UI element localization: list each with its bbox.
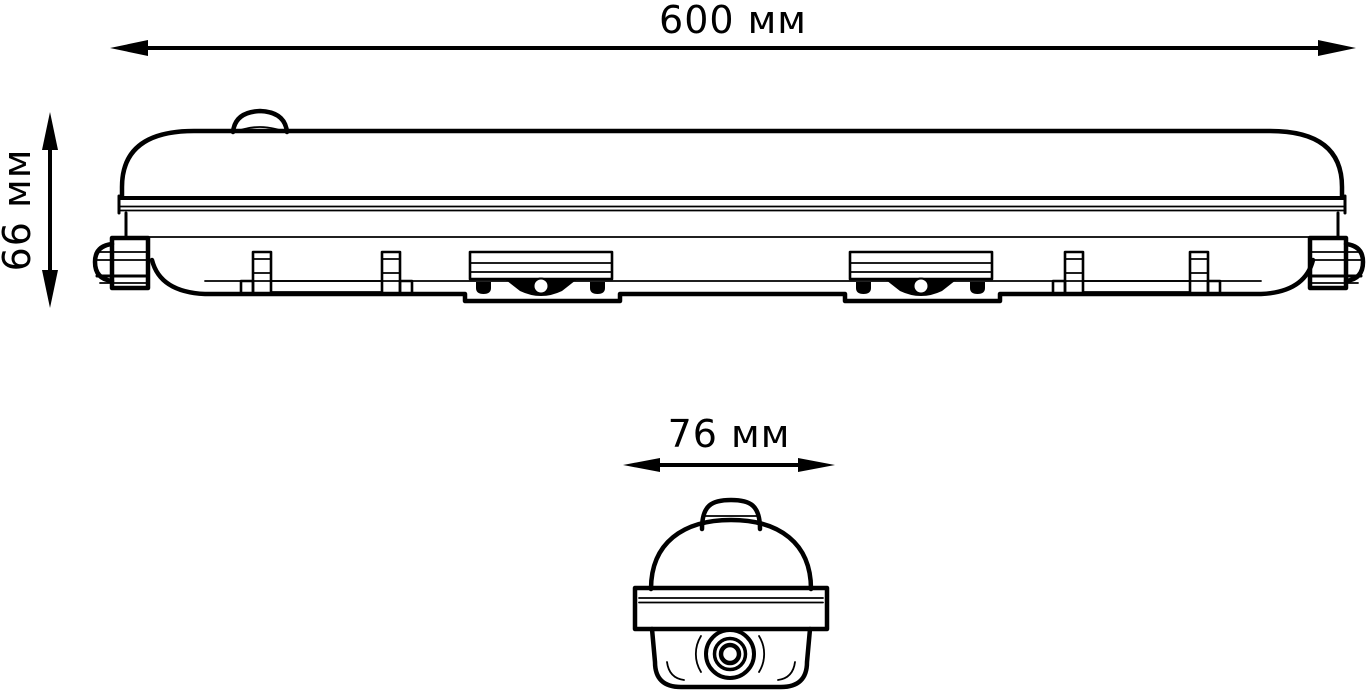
end-cap-left [95,238,148,288]
dimension-height: 66 мм [0,112,58,308]
side-view [95,111,1363,301]
mounting-rail-left [271,281,382,292]
housing-cover-outline [122,131,1342,197]
arrow-left-icon [110,40,148,56]
mounting-rail-right [1083,281,1190,292]
arrow-up-icon [42,112,58,150]
dimension-length-label: 600 мм [659,0,807,42]
dimension-height-label: 66 мм [0,149,39,272]
front-tray-inner-left [667,662,684,680]
end-cap-left-block [112,238,148,288]
latch-pin-2 [590,282,605,294]
front-dome-outline [651,520,811,589]
latch-bracket-right [850,252,992,296]
cable-gland-hole [721,645,739,663]
gasket-seam [119,196,1345,213]
front-flange-outline [635,588,827,629]
mounting-clip-pair-right [1053,252,1220,294]
front-flange [635,588,827,629]
cable-gland-recess-left [696,636,701,672]
dimension-length: 600 мм [110,0,1356,56]
latch-pin-4 [970,282,985,294]
front-sensor-dome [702,500,760,529]
latch-bracket-right-body [850,252,992,279]
latch-pin-3 [856,282,871,294]
latch-screw-left [534,279,549,294]
front-tray-inner-right [778,662,795,680]
technical-drawing-page: 600 мм 66 мм [0,0,1369,691]
latch-screw-right [914,279,929,294]
dimension-width-label: 76 мм [668,412,791,456]
latch-pin-1 [476,282,491,294]
arrow-left-icon [623,458,660,472]
end-cap-right-block [1310,238,1346,288]
dimension-width: 76 мм [623,412,835,472]
cable-gland-recess-right [759,636,764,672]
mounting-clip-pair-left [241,252,412,294]
latch-bracket-left [470,252,612,296]
arrow-down-icon [42,270,58,308]
front-sensor-dome-outline [702,500,760,529]
arrow-right-icon [1318,40,1356,56]
end-cap-right [1310,238,1363,288]
luminaire-dimension-drawing: 600 мм 66 мм [0,0,1369,691]
arrow-right-icon [798,458,835,472]
cable-gland [696,630,764,678]
latch-bracket-left-body [470,252,612,279]
front-view [635,500,827,687]
body-tray [126,213,1338,301]
